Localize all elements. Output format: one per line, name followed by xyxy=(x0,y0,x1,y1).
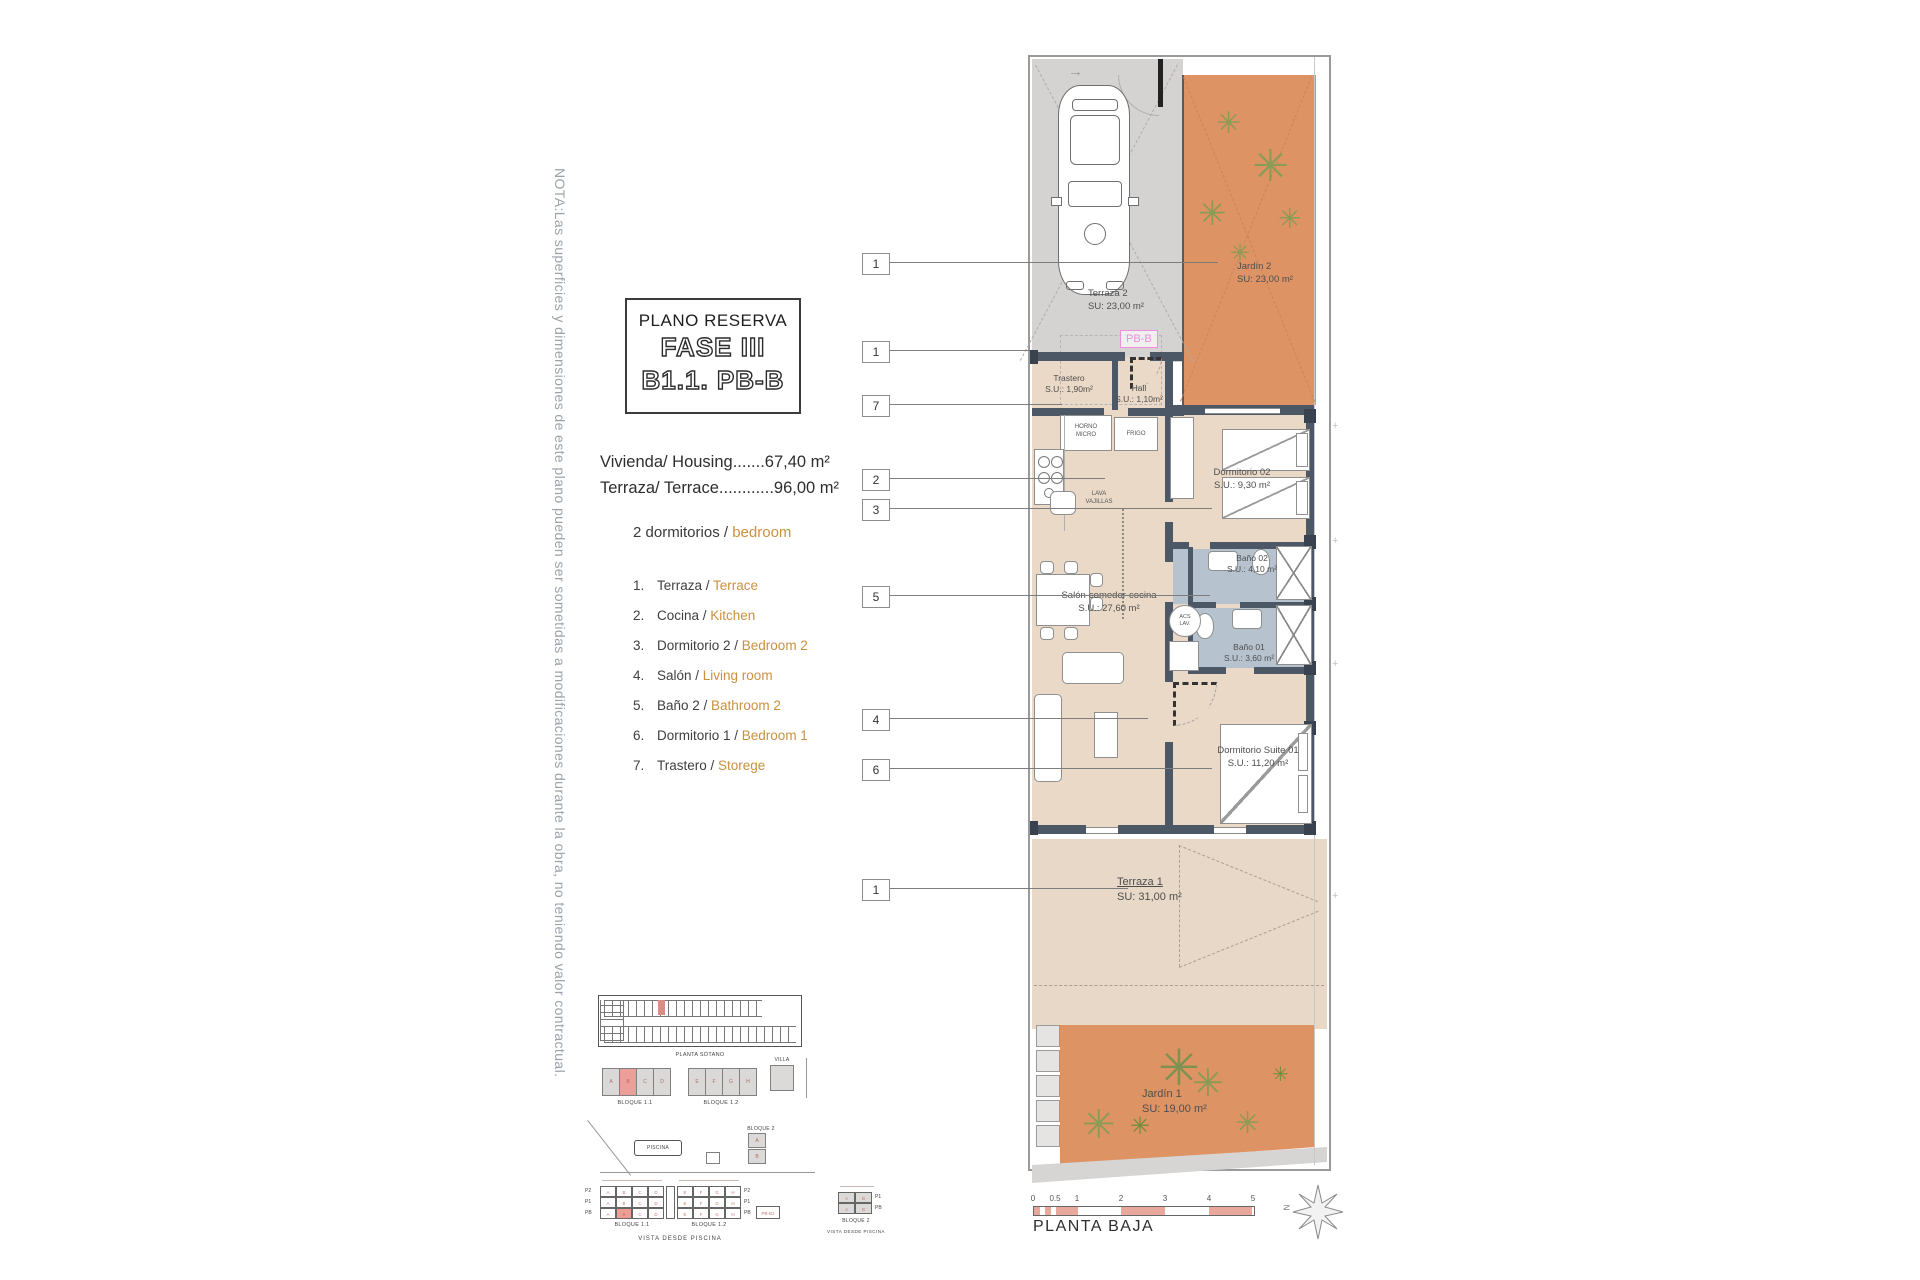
leader-line xyxy=(888,768,1212,769)
acs-label: ACS LAV. xyxy=(1170,614,1200,628)
palm-plant-icon: ✳ xyxy=(1216,109,1241,139)
pillar xyxy=(1304,409,1316,423)
site-unit: C xyxy=(636,1068,654,1096)
legend-num: 2. xyxy=(633,608,657,623)
car-headlight xyxy=(1066,281,1084,290)
bloque12-label: BLOQUE 1.2 xyxy=(684,1100,758,1106)
bloque11-elev-label: BLOQUE 1.1 xyxy=(600,1222,664,1228)
tree-icon: ✳ xyxy=(1130,1115,1150,1139)
scale-seg xyxy=(1056,1207,1078,1215)
elev-cell: G xyxy=(709,1186,725,1197)
dim-mark xyxy=(679,1180,739,1181)
room-area: SU: 23,00 m² xyxy=(1237,274,1293,287)
drive-arrow-icon: → xyxy=(1068,63,1083,80)
lava-label: LAVA xyxy=(1076,491,1122,499)
legend-en: Bathroom 2 xyxy=(711,698,781,713)
car-roof xyxy=(1070,115,1120,165)
room-name: Trastero xyxy=(1033,373,1105,384)
callout-terrace: 1 xyxy=(862,253,890,275)
elev-cell: F xyxy=(693,1208,709,1219)
highlighted-parking-spot xyxy=(658,1000,665,1015)
dishwasher-label: LAVA VAJILLAS xyxy=(1076,491,1122,506)
room-area: SU: 23,00 m² xyxy=(1088,301,1144,314)
horno-label: HORNO xyxy=(1061,424,1111,432)
elev-cell: C xyxy=(632,1197,648,1208)
pillar xyxy=(1030,350,1038,364)
floor-label: P2 xyxy=(744,1188,750,1194)
legend-item: 3.Dormitorio 2 / Bedroom 2 xyxy=(633,638,808,653)
laundry-column xyxy=(1169,641,1199,671)
elev-cell: C xyxy=(632,1208,648,1219)
piscina-label: PISCINA xyxy=(635,1145,681,1151)
legend-es: Salón / xyxy=(657,668,703,683)
callout-bedroom2: 3 xyxy=(862,499,890,521)
scale-tick: 5 xyxy=(1251,1194,1255,1203)
dim-cross-icon: + xyxy=(1332,658,1338,670)
legend-en: Living room xyxy=(703,668,773,683)
bano02-label: Baño 02 S.U.: 4,10 m² xyxy=(1212,553,1292,576)
step xyxy=(1036,1050,1060,1072)
legend-es: Dormitorio 2 / xyxy=(657,638,742,653)
legend-num: 5. xyxy=(633,698,657,713)
jardin1-label: Jardín 1 SU: 19,00 m² xyxy=(1142,1087,1207,1117)
vista-caption2: VISTA DESDE PISCINA xyxy=(820,1229,892,1234)
elev-cell: D xyxy=(648,1186,664,1197)
bedrooms-en: bedroom xyxy=(732,524,791,541)
legend-es: Cocina / xyxy=(657,608,710,623)
bloque2-elev-label: BLOQUE 2 xyxy=(832,1218,880,1224)
car-top-view xyxy=(1058,85,1130,295)
room-name: Dormitorio 02 xyxy=(1202,467,1282,480)
scale-tick: 1 xyxy=(1075,1194,1079,1203)
legend-en: Kitchen xyxy=(710,608,755,623)
room-area: S.U.: 3,60 m² xyxy=(1209,653,1289,664)
site-boundary xyxy=(587,1120,631,1176)
fridge: FRIGO xyxy=(1114,417,1158,451)
palm-plant-icon: ✳ xyxy=(1198,197,1227,231)
elev-cell: F xyxy=(693,1186,709,1197)
room-area: SU: 19,00 m² xyxy=(1142,1102,1207,1117)
car-badge xyxy=(1084,223,1106,245)
frigo-label: FRIGO xyxy=(1115,431,1157,439)
room-area: S.U.: 1,90m² xyxy=(1033,384,1105,395)
room-name: Dormitorio Suite 01 xyxy=(1210,745,1306,758)
window xyxy=(1086,827,1118,834)
legend-es: Trastero / xyxy=(657,758,718,773)
terraza2-label: Terraza 2 SU: 23,00 m² xyxy=(1088,288,1144,314)
legend-es: Dormitorio 1 / xyxy=(657,728,742,743)
micro-label: MICRO xyxy=(1061,432,1111,440)
title-plano-reserva: PLANO RESERVA xyxy=(627,311,799,331)
stair-tower xyxy=(666,1186,675,1219)
site-small-block xyxy=(706,1152,720,1164)
wardrobe xyxy=(1170,417,1194,499)
elev-cell: H xyxy=(725,1197,741,1208)
elev-cell: A xyxy=(838,1192,855,1203)
window xyxy=(1205,408,1280,414)
scale-seg xyxy=(1034,1207,1040,1215)
legend-en: Terrace xyxy=(713,578,758,593)
palm-plant-icon: ✳ xyxy=(1252,145,1289,189)
room-area: S.U.: 27,60 m² xyxy=(1044,603,1174,616)
dim-cross-icon: + xyxy=(1332,535,1338,547)
room-name: Baño 02 xyxy=(1212,553,1292,564)
dim-mark xyxy=(602,1180,662,1181)
legend-en: Storege xyxy=(718,758,765,773)
chair xyxy=(1064,627,1078,640)
callout-terrace1: 1 xyxy=(862,879,890,901)
site-boundary xyxy=(600,1172,815,1173)
legend-num: 3. xyxy=(633,638,657,653)
annex-cell: PB-B1 xyxy=(756,1206,780,1219)
elev-cell: G xyxy=(709,1197,725,1208)
vista-caption: VISTA DESDE PISCINA xyxy=(600,1236,760,1242)
acs-line2: LAV. xyxy=(1170,621,1200,628)
dim-cross-icon: + xyxy=(1332,890,1338,902)
legend-item: 5.Baño 2 / Bathroom 2 xyxy=(633,698,781,713)
legend-item: 7.Trastero / Storege xyxy=(633,758,765,773)
step xyxy=(1036,1025,1060,1047)
hall-label: Hall S.U.: 1,10m² xyxy=(1113,383,1165,406)
site-unit: G xyxy=(722,1068,740,1096)
sofa xyxy=(1062,652,1124,684)
compass-rose-icon xyxy=(1292,1184,1344,1240)
villa-label: VILLA xyxy=(768,1057,796,1063)
scale-seg xyxy=(1209,1207,1252,1215)
car-rear-window xyxy=(1072,99,1118,111)
salon-label: Salón-comedor-cocina S.U.: 27,60 m² xyxy=(1044,590,1174,616)
terrace-dash xyxy=(1034,985,1324,986)
elev-cell: B xyxy=(616,1197,632,1208)
pillow xyxy=(1296,481,1308,515)
site-unit: F xyxy=(705,1068,723,1096)
elev-cell: A xyxy=(838,1203,855,1214)
site-unit: A xyxy=(602,1068,620,1096)
legend-num: 4. xyxy=(633,668,657,683)
callout-bathroom2: 5 xyxy=(862,586,890,608)
wall xyxy=(1165,742,1173,832)
leader-line xyxy=(888,718,1148,719)
elev-cell: B xyxy=(616,1186,632,1197)
legend-en: Bedroom 1 xyxy=(742,728,808,743)
surface-areas: Vivienda/ Housing.......67,40 m² Terraza… xyxy=(600,450,839,501)
title-block: PLANO RESERVA FASE III B1.1. PB-B xyxy=(625,298,801,414)
acs-line1: ACS xyxy=(1170,614,1200,621)
room-name: Baño 01 xyxy=(1209,642,1289,653)
leader-line xyxy=(888,404,1062,405)
leader-line xyxy=(888,508,1212,509)
callout-kitchen: 2 xyxy=(862,469,890,491)
wall xyxy=(1167,542,1189,549)
site-unit: D xyxy=(653,1068,671,1096)
pergola-dash xyxy=(1179,845,1180,967)
leader-line xyxy=(888,350,1030,351)
elev-cell: B xyxy=(855,1203,872,1214)
elev-cell: E xyxy=(677,1186,693,1197)
elev-cell: F xyxy=(693,1197,709,1208)
chair xyxy=(1040,627,1054,640)
palm-plant-icon: ✳ xyxy=(1278,205,1301,233)
room-area: S.U.: 4,10 m² xyxy=(1212,564,1292,575)
chair xyxy=(1064,561,1078,574)
sheet-title: PLANTA BAJA xyxy=(1033,1218,1154,1236)
window xyxy=(1214,827,1246,834)
pillow xyxy=(1298,775,1308,813)
kitchen-sink xyxy=(1050,491,1076,515)
pillar xyxy=(1030,821,1038,835)
chair xyxy=(1040,561,1054,574)
scale-tick: 0 xyxy=(1031,1194,1035,1203)
pillow xyxy=(1296,433,1308,467)
elev-cell: E xyxy=(677,1208,693,1219)
scale-tick: 0.5 xyxy=(1049,1194,1060,1203)
bloque11-label: BLOQUE 1.1 xyxy=(598,1100,672,1106)
car-mirror xyxy=(1128,197,1139,206)
legend-num: 6. xyxy=(633,728,657,743)
site-unit: H xyxy=(739,1068,757,1096)
chair xyxy=(1090,573,1103,587)
terraza1-label: Terraza 1 SU: 31,00 m² xyxy=(1117,875,1182,905)
plot-right-line xyxy=(1314,57,1315,1165)
leader-line xyxy=(888,262,1218,263)
callout-bedroom1: 6 xyxy=(862,759,890,781)
pool: PISCINA xyxy=(634,1140,682,1156)
step xyxy=(1036,1075,1060,1097)
room-area: S.U.: 11,20 m² xyxy=(1210,758,1306,771)
scale-tick: 3 xyxy=(1163,1194,1167,1203)
legend-item: 1.Terraza / Terrace xyxy=(633,578,758,593)
scale-seg xyxy=(1121,1207,1165,1215)
scale-bar xyxy=(1033,1206,1255,1216)
elevation-bloque12: E F G H E F G H E F G H xyxy=(677,1186,741,1219)
dormitorio02-label: Dormitorio 02 S.U.: 9,30 m² xyxy=(1202,467,1282,493)
elev-cell-highlight: B xyxy=(616,1208,632,1219)
wall xyxy=(1032,825,1086,834)
room-area: S.U.: 1,10m² xyxy=(1113,394,1165,405)
dim-cross-icon: + xyxy=(1332,420,1338,432)
leader-line xyxy=(888,888,1128,889)
room-area: S.U.: 9,30 m² xyxy=(1202,480,1282,493)
dim-mark xyxy=(840,1186,874,1187)
floor-label: P1 xyxy=(585,1199,591,1205)
room-name: Hall xyxy=(1113,383,1165,394)
title-unit-code: B1.1. PB-B xyxy=(627,364,799,397)
step xyxy=(1036,1125,1060,1147)
elev-cell: C xyxy=(632,1186,648,1197)
wall xyxy=(1165,352,1173,414)
scale-tick: 4 xyxy=(1207,1194,1211,1203)
room-area: SU: 31,00 m² xyxy=(1117,890,1182,905)
elev-cell: A xyxy=(600,1208,616,1219)
disclaimer-note: NOTA:Las superficies y dimensiones de es… xyxy=(552,168,568,1113)
tree-icon: ✳ xyxy=(1235,1109,1260,1139)
bedrooms-es: 2 dormitorios / xyxy=(633,524,732,541)
legend-item: 2.Cocina / Kitchen xyxy=(633,608,755,623)
site-unit-highlight: B xyxy=(619,1068,637,1096)
garden-steps xyxy=(1036,1025,1060,1151)
room-name: Jardín 1 xyxy=(1142,1087,1207,1102)
trastero-label: Trastero S.U.: 1,90m² xyxy=(1033,373,1105,396)
bano01-label: Baño 01 S.U.: 3,60 m² xyxy=(1209,642,1289,665)
jardin2-label: Jardín 2 SU: 23,00 m² xyxy=(1237,261,1293,287)
elev-cell: D xyxy=(648,1208,664,1219)
car-mirror xyxy=(1051,197,1062,206)
room-name: Jardín 2 xyxy=(1237,261,1293,274)
parking-stalls xyxy=(600,1000,624,1041)
wall xyxy=(1118,825,1214,834)
legend-num: 1. xyxy=(633,578,657,593)
floor-label: PB xyxy=(744,1210,751,1216)
burner xyxy=(1051,456,1063,468)
legend-num: 7. xyxy=(633,758,657,773)
elev-cell: H xyxy=(725,1186,741,1197)
floor-label: P1 xyxy=(875,1194,881,1200)
washbasin xyxy=(1232,609,1262,629)
villa-unit xyxy=(770,1065,794,1091)
elevation-bloque11: A B C D A B C D A B C D xyxy=(600,1186,664,1219)
vajillas-label: VAJILLAS xyxy=(1076,499,1122,507)
legend-item: 6.Dormitorio 1 / Bedroom 1 xyxy=(633,728,808,743)
car-windshield xyxy=(1068,181,1122,207)
title-fase: FASE III xyxy=(627,331,799,364)
parking-stalls xyxy=(604,1026,796,1043)
elev-cell: E xyxy=(677,1197,693,1208)
floor-plan: → ✳ ✳ ✳ ✳ ✳ xyxy=(1028,55,1331,1171)
elev-cell: G xyxy=(709,1208,725,1219)
tree-icon: ✳ xyxy=(1082,1105,1116,1145)
burner xyxy=(1038,456,1050,468)
callout-terrace-entry: 1 xyxy=(862,341,890,363)
elev-cell: A xyxy=(600,1186,616,1197)
legend-en: Bedroom 2 xyxy=(742,638,808,653)
leader-line xyxy=(888,595,1210,596)
floor-label: PB xyxy=(585,1210,592,1216)
site-unit: A xyxy=(748,1133,766,1148)
suite-label: Dormitorio Suite 01 S.U.: 11,20 m² xyxy=(1210,745,1306,771)
site-unit: B xyxy=(748,1149,766,1164)
callout-living: 4 xyxy=(862,709,890,731)
site-boundary xyxy=(806,1058,807,1098)
parking-stalls xyxy=(604,1000,762,1017)
floor-label: PB xyxy=(875,1205,882,1211)
scale-tick: 2 xyxy=(1119,1194,1123,1203)
kitchen-cabinet: HORNO MICRO xyxy=(1060,415,1112,451)
floor-label: P2 xyxy=(585,1188,591,1194)
tree-icon: ✳ xyxy=(1272,1065,1289,1085)
housing-area: Vivienda/ Housing.......67,40 m² xyxy=(600,450,839,476)
horno-micro-label: HORNO MICRO xyxy=(1061,424,1111,439)
room-name: Salón-comedor-cocina xyxy=(1044,590,1174,603)
unit-tag: PB-B xyxy=(1120,330,1158,348)
elev-cell: D xyxy=(648,1197,664,1208)
elevation-bloque2: A B A B xyxy=(838,1192,872,1214)
bedrooms-line: 2 dormitorios / bedroom xyxy=(633,524,791,541)
floor-label: P1 xyxy=(744,1199,750,1205)
scale-seg xyxy=(1045,1207,1051,1215)
room-name: Terraza 2 xyxy=(1088,288,1144,301)
reservation-plan-sheet: NOTA:Las superficies y dimensiones de es… xyxy=(0,0,1920,1280)
north-letter: N xyxy=(1282,1205,1291,1211)
legend-es: Baño 2 / xyxy=(657,698,711,713)
site-unit: E xyxy=(688,1068,706,1096)
leader-line xyxy=(888,478,1105,479)
elev-cell: H xyxy=(725,1208,741,1219)
elev-cell: A xyxy=(600,1197,616,1208)
step xyxy=(1036,1100,1060,1122)
legend-item: 4.Salón / Living room xyxy=(633,668,773,683)
bloque2-site-label: BLOQUE 2 xyxy=(740,1126,782,1132)
terrace-area: Terraza/ Terrace............96,00 m² xyxy=(600,476,839,502)
bloque12-elev-label: BLOQUE 1.2 xyxy=(677,1222,741,1228)
legend-es: Terraza / xyxy=(657,578,713,593)
callout-storage: 7 xyxy=(862,395,890,417)
elev-cell: B xyxy=(855,1192,872,1203)
